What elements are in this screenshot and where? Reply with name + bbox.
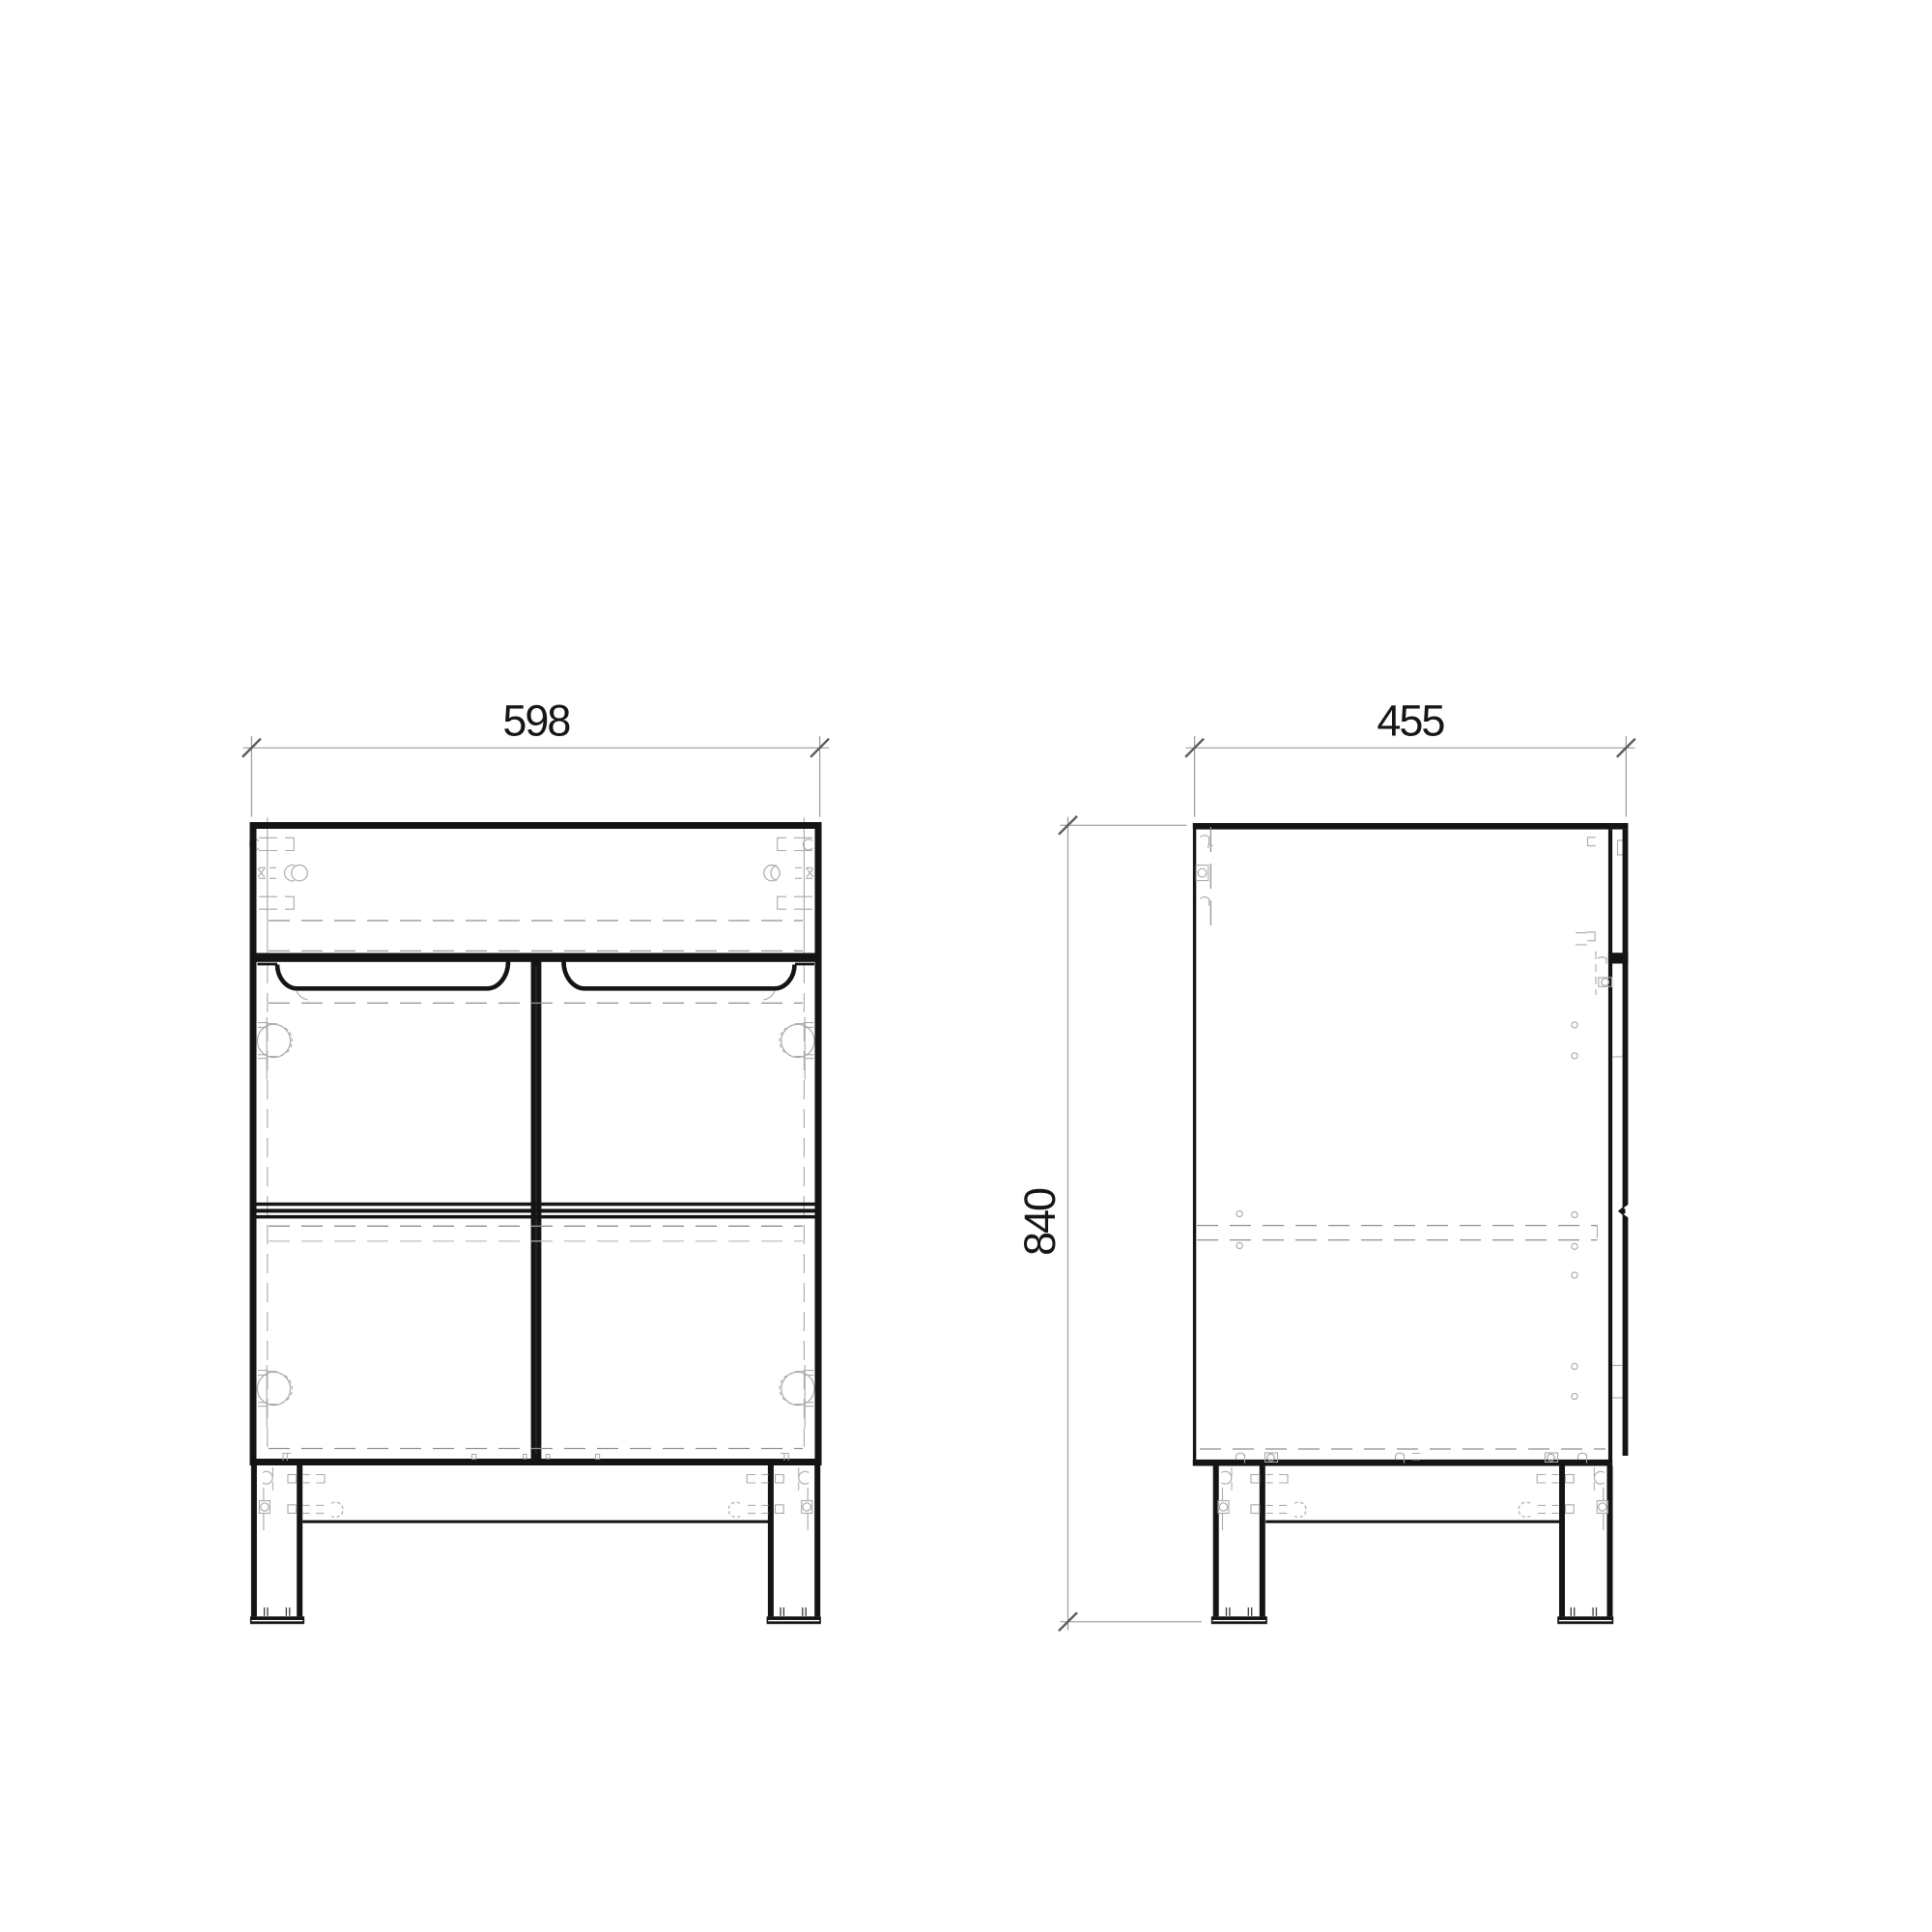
svg-text:840: 840 bbox=[1015, 1188, 1065, 1256]
svg-text:598: 598 bbox=[502, 696, 570, 746]
svg-text:455: 455 bbox=[1377, 696, 1444, 746]
